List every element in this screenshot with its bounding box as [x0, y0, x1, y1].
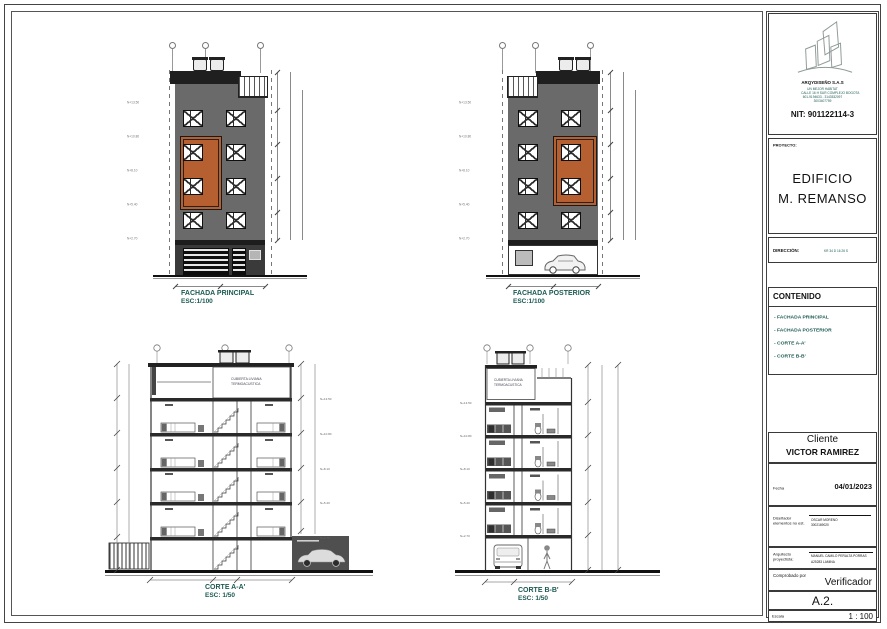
service-door [232, 248, 246, 275]
level-label: N+5.40 [460, 501, 470, 505]
roof-railing [507, 76, 538, 98]
arquitecto-label-line2: proyectista: [773, 557, 793, 562]
corte-a-floor [161, 402, 285, 434]
corte-a-drawing: CUBIERTA LIVIANA TERMOACUSTICA [105, 342, 380, 587]
contenido-header: CONTENIDO [769, 288, 876, 307]
titleblock-escala-box: Escala 1 : 100 [768, 610, 877, 622]
level-label: N+5.40 [459, 203, 469, 207]
vent-box [249, 250, 261, 260]
level-label: N+2.70 [459, 237, 469, 241]
roof-note-line2: TERMOACUSTICA [494, 383, 523, 387]
level-label: N+2.70 [127, 237, 137, 241]
grid-bubble [499, 42, 506, 49]
arquitecto-value-line1: MANUEL CAMILO PERALTA PORRAS [811, 554, 867, 558]
property-line [271, 70, 272, 275]
ground-window [515, 250, 533, 266]
level-label: N+13.50 [459, 101, 471, 105]
titleblock-comprobado-box: Comprobado por Verificador [768, 569, 877, 591]
ground-line [486, 275, 640, 277]
titleblock-logo-box: ARQYDISEÑO S.A.S UN MEJOR HABITAT CALLE … [768, 13, 877, 135]
proyecto-name-line1: EDIFICIO [769, 169, 876, 189]
roof-note-line1: CUBIERTA LIVIANA [494, 378, 524, 382]
ground-line [153, 275, 307, 277]
drawing-title-text: FACHADA PRINCIPAL [181, 290, 254, 298]
corte-b-floor [487, 472, 558, 503]
dim-tick [596, 284, 602, 290]
direccion-value: KR 34 D 16 26 S [824, 249, 848, 253]
titleblock-arquitecto-box: Arquitecto proyectista: MANUEL CAMILO PE… [768, 547, 877, 569]
drawing-scale-text: ESC: 1/50 [518, 595, 559, 603]
contenido-item: - FACHADA POSTERIOR [774, 327, 832, 333]
corte-b-floor [487, 439, 558, 469]
water-tank [210, 59, 224, 71]
contenido-item: - CORTE B-B' [774, 353, 806, 359]
titleblock-proyecto-box: PROYECTO: EDIFICIO M. REMANSO [768, 138, 877, 234]
property-line [602, 70, 603, 275]
roof-note-line1: CUBIERTA LIVIANA [231, 377, 262, 381]
parapet [536, 71, 600, 84]
ground-line-2 [486, 278, 640, 279]
disenador-label-line1: Diseñador [773, 516, 791, 521]
disenador-label-line2: elementos no est. [773, 521, 805, 526]
grid-bubble [587, 42, 594, 49]
comprobado-value: Verificador [825, 577, 872, 588]
window [518, 110, 538, 127]
titleblock-disenador-box: Diseñador elementos no est. OSCAR MORENO… [768, 506, 877, 547]
disenador-value-line1: OSCAR MORENO [811, 518, 838, 522]
roof-railing [238, 76, 268, 98]
level-label: N+5.40 [127, 203, 137, 207]
company-name: ARQYDISEÑO S.A.S [793, 80, 852, 85]
grid-bubble [169, 42, 176, 49]
window [561, 178, 581, 195]
corte-a-floor [161, 437, 285, 469]
property-line [502, 70, 503, 275]
contenido-title: CONTENIDO [773, 292, 821, 301]
window [518, 178, 538, 195]
dim-tick [275, 238, 281, 244]
level-label: N+5.40 [320, 501, 330, 505]
comprobado-label: Comprobado por [773, 573, 806, 578]
level-label: N+13.50 [460, 401, 472, 405]
drawing-title: CORTE A-A' ESC: 1/50 [205, 584, 245, 600]
fecha-value: 04/01/2023 [834, 482, 872, 491]
cliente-name: VICTOR RAMIREZ [769, 447, 876, 457]
corte-a-ground [105, 536, 373, 576]
property-line [169, 70, 170, 275]
dimension-chain [623, 72, 624, 240]
window [226, 144, 246, 161]
level-label: N+8.10 [127, 169, 137, 173]
corte-b-drawing: CUBIERTA LIVIANA TERMOACUSTICA [450, 342, 670, 592]
drawing-title: FACHADA POSTERIOR ESC:1/100 [513, 290, 590, 306]
titleblock-direccion-box: DIRECCIÓN: KR 34 D 16 26 S [768, 237, 877, 263]
dimension-chain [302, 90, 303, 240]
grid-bubble [532, 42, 539, 49]
fecha-label: Fecha [773, 486, 784, 491]
window [518, 212, 538, 229]
sheet-code: A.2. [769, 594, 876, 608]
level-label: N+10.80 [320, 432, 332, 436]
corte-a-floor [161, 506, 285, 538]
company-phone2: 3003407759 [801, 99, 844, 103]
level-label: N+10.80 [460, 434, 472, 438]
parapet [170, 71, 241, 84]
window [561, 144, 581, 161]
car-side-view [543, 252, 589, 275]
window [561, 110, 581, 127]
arquitecto-value-line2: A25283 LAMINA [811, 560, 835, 564]
level-label: N+8.10 [459, 169, 469, 173]
window [518, 144, 538, 161]
level-label: N+8.10 [460, 467, 470, 471]
dimension-chain [290, 72, 291, 240]
company-nit: NIT: 901122114-3 [769, 110, 876, 119]
roof-note-line2: TERMOACUSTICA [231, 382, 261, 386]
window [183, 144, 203, 161]
corte-a-floor [161, 472, 285, 503]
company-logo-icon [793, 18, 857, 80]
grid-bubble [202, 42, 209, 49]
grid-stem [590, 49, 591, 73]
titleblock-fecha-box: Fecha 04/01/2023 [768, 463, 877, 506]
level-label: N+2.70 [460, 534, 470, 538]
proyecto-label: PROYECTO: [773, 143, 797, 148]
escala-label: Escala [772, 614, 784, 619]
level-label: N+8.10 [320, 467, 330, 471]
level-label: N+13.50 [320, 397, 332, 401]
drawing-title-text: CORTE A-A' [205, 584, 245, 592]
signature-line [809, 515, 871, 516]
proyecto-name-line2: M. REMANSO [769, 189, 876, 209]
dim-tick [263, 284, 269, 290]
drawing-title-text: CORTE B-B' [518, 587, 559, 595]
corte-b-roof [485, 351, 571, 400]
disenador-value-line2: 3002169020 [811, 523, 829, 527]
direccion-label: DIRECCIÓN: [773, 248, 799, 253]
window [183, 178, 203, 195]
cliente-label: Cliente [769, 434, 876, 445]
grid-bubble [257, 42, 264, 49]
window [183, 110, 203, 127]
escala-value: 1 : 100 [849, 612, 873, 621]
architectural-sheet: N+13.50 N+10.80 N+8.10 N+5.40 N+2.70 FAC… [0, 0, 887, 629]
proyecto-name: EDIFICIO M. REMANSO [769, 169, 876, 208]
drawing-scale-text: ESC:1/100 [181, 298, 254, 306]
water-tank [559, 59, 573, 71]
water-tank [576, 59, 590, 71]
grid-stem [535, 49, 536, 73]
dimension-chain [635, 90, 636, 240]
window [226, 212, 246, 229]
drawing-title: FACHADA PRINCIPAL ESC:1/100 [181, 290, 254, 306]
signature-line [809, 552, 873, 553]
drawing-scale-text: ESC:1/100 [513, 298, 590, 306]
drawing-title-text: FACHADA POSTERIOR [513, 290, 590, 298]
fachada-principal-drawing: N+13.50 N+10.80 N+8.10 N+5.40 N+2.70 FAC… [125, 40, 355, 304]
titleblock-cliente-box: Cliente VICTOR RAMIREZ [768, 432, 877, 463]
level-label: N+2.70 [320, 536, 330, 540]
drawing-title: CORTE B-B' ESC: 1/50 [518, 587, 559, 603]
garage-door [183, 248, 229, 275]
contenido-item: - CORTE A-A' [774, 340, 806, 346]
level-label: N+13.50 [127, 101, 139, 105]
corte-a-roof [148, 350, 294, 398]
titleblock-sheet-box: A.2. [768, 591, 877, 610]
drawing-scale-text: ESC: 1/50 [205, 592, 245, 600]
window [183, 212, 203, 229]
window [561, 212, 581, 229]
corte-b-floor [487, 506, 558, 536]
ground-line-2 [153, 278, 307, 279]
water-tank [193, 59, 207, 71]
window [226, 178, 246, 195]
corte-b-floor [487, 406, 558, 436]
grid-stem [172, 49, 173, 73]
dim-tick [608, 238, 614, 244]
arquitecto-label-line1: Arquitecto [773, 552, 791, 557]
fachada-posterior-drawing: N+13.50 N+10.80 N+8.10 N+5.40 N+2.70 FAC… [455, 40, 685, 304]
level-label: N+10.80 [127, 135, 139, 139]
level-label: N+10.80 [459, 135, 471, 139]
titleblock-contenido-box: CONTENIDO - FACHADA PRINCIPAL - FACHADA … [768, 287, 877, 375]
contenido-item: - FACHADA PRINCIPAL [774, 314, 829, 320]
dimension-chain [610, 72, 611, 240]
window [226, 110, 246, 127]
grid-stem [260, 49, 261, 73]
dimension-chain [277, 72, 278, 240]
